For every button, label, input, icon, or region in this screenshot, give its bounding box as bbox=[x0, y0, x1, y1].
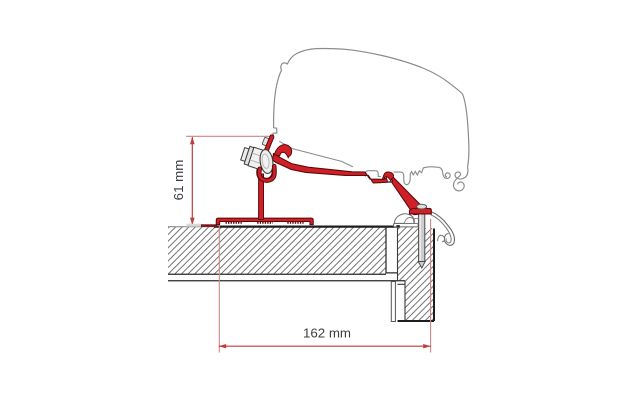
svg-text:162 mm: 162 mm bbox=[303, 326, 351, 341]
svg-text:61 mm: 61 mm bbox=[171, 160, 186, 201]
